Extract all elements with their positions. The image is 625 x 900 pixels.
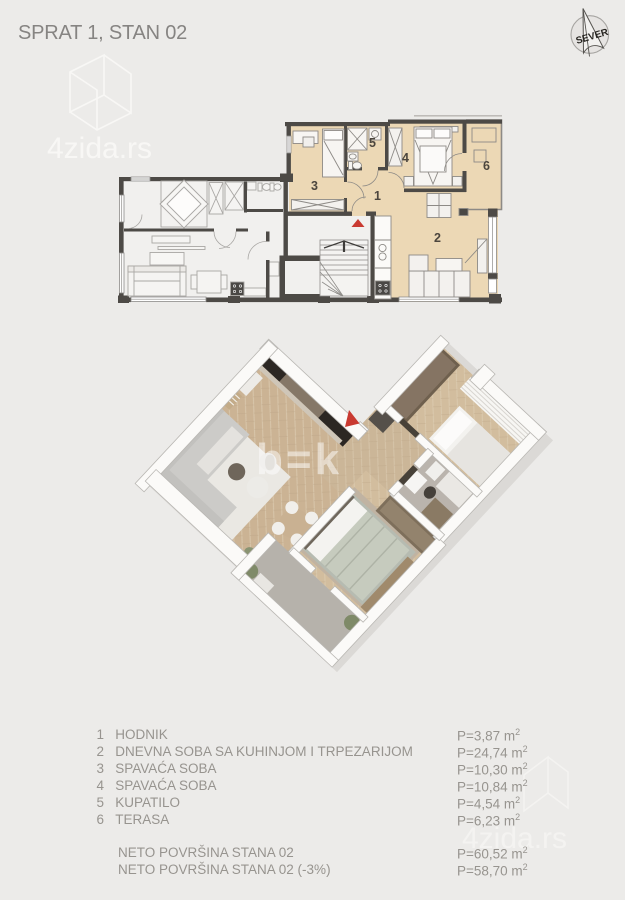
svg-text:2: 2 [434,231,441,245]
svg-text:1: 1 [374,189,381,203]
svg-text:6: 6 [483,159,490,173]
svg-text:3: 3 [311,179,318,193]
svg-text:5: 5 [369,136,376,150]
svg-text:b=k: b=k [256,435,342,484]
svg-text:4: 4 [402,151,409,165]
svg-text:4zida.rs: 4zida.rs [47,132,152,165]
